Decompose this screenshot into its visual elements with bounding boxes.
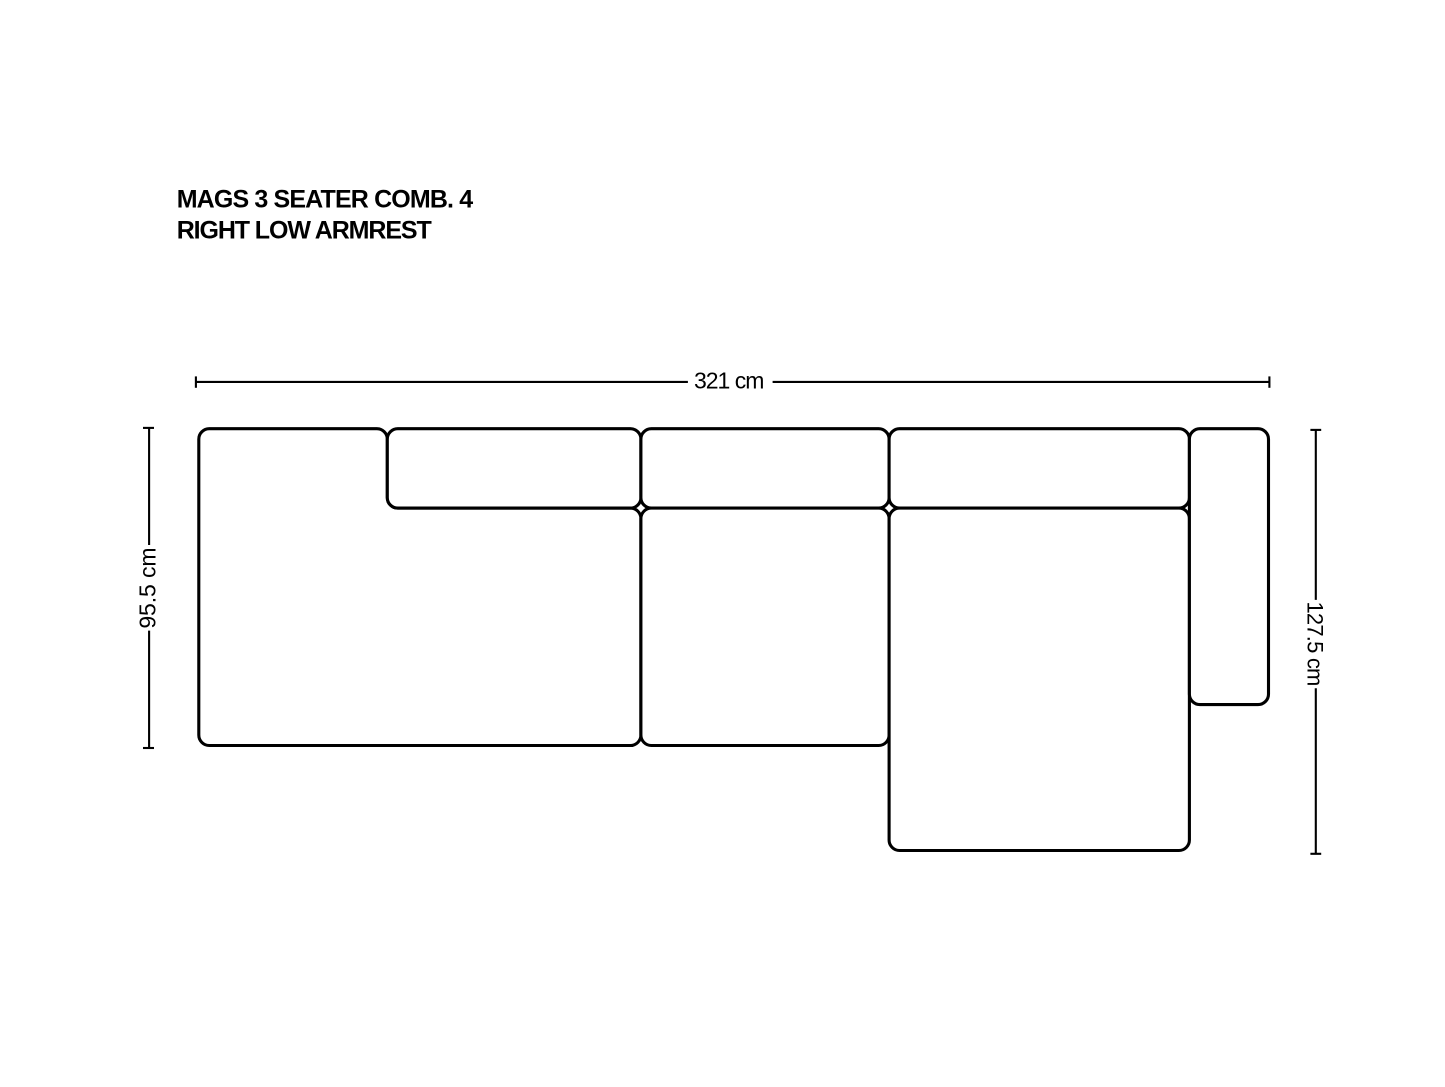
svg-text:RIGHT LOW ARMREST: RIGHT LOW ARMREST — [177, 217, 432, 245]
svg-text:127.5 cm: 127.5 cm — [1302, 601, 1327, 685]
svg-text:95.5 cm: 95.5 cm — [135, 548, 161, 629]
svg-text:321 cm: 321 cm — [694, 368, 763, 394]
svg-text:MAGS 3 SEATER COMB. 4: MAGS 3 SEATER COMB. 4 — [177, 186, 474, 214]
